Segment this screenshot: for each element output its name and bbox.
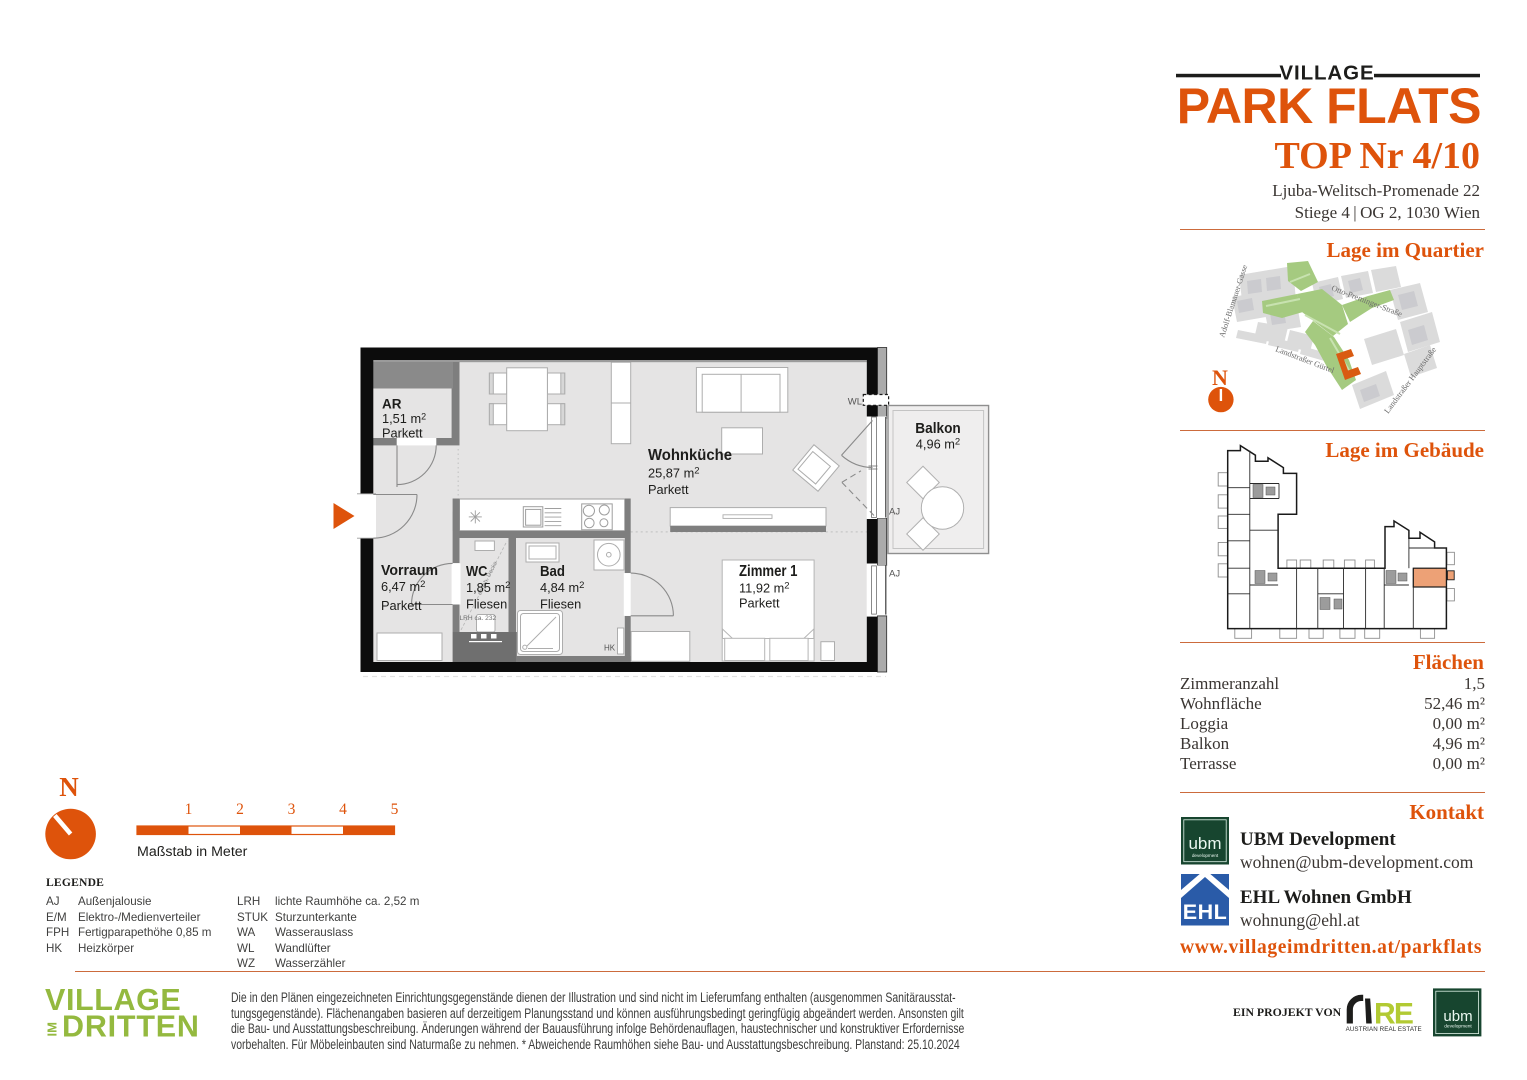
svg-text:2: 2 — [236, 801, 244, 818]
svg-text:Vorraum: Vorraum — [381, 562, 438, 579]
svg-text:HK: HK — [604, 644, 616, 653]
svg-text:DRITTEN: DRITTEN — [62, 1010, 200, 1044]
svg-text:EHL: EHL — [1183, 900, 1228, 924]
svg-text:N: N — [1212, 365, 1228, 390]
svg-text:Parkett: Parkett — [648, 482, 689, 497]
svg-text:Bad: Bad — [540, 563, 565, 580]
svg-text:N: N — [59, 772, 79, 802]
svg-text:Maßstab in Meter: Maßstab in Meter — [137, 844, 248, 860]
svg-text:Fliesen: Fliesen — [466, 597, 507, 612]
svg-text:25,87 m2: 25,87 m2 — [648, 466, 700, 481]
svg-text:11,92 m2: 11,92 m2 — [739, 581, 790, 596]
svg-text:Zimmer 1: Zimmer 1 — [739, 563, 798, 580]
svg-text:Parkett: Parkett — [739, 596, 780, 611]
svg-text:1: 1 — [185, 801, 193, 818]
svg-text:Parkett: Parkett — [381, 598, 422, 613]
svg-text:4,84 m2: 4,84 m2 — [540, 580, 584, 595]
svg-text:6,47 m2: 6,47 m2 — [381, 579, 425, 594]
svg-text:AR: AR — [382, 397, 402, 412]
svg-text:3: 3 — [288, 801, 296, 818]
svg-text:Parkett: Parkett — [382, 426, 423, 441]
svg-text:LRH ca. 232: LRH ca. 232 — [460, 615, 497, 622]
svg-text:AJ: AJ — [889, 507, 900, 518]
svg-text:development: development — [1444, 1024, 1472, 1030]
svg-text:Wohnküche: Wohnküche — [648, 447, 732, 464]
svg-text:5: 5 — [391, 801, 399, 818]
svg-text:4: 4 — [339, 801, 347, 818]
svg-text:1,51 m2: 1,51 m2 — [382, 411, 426, 426]
svg-text:WC: WC — [466, 563, 488, 580]
svg-text:ubm: ubm — [1188, 834, 1221, 853]
svg-text:4,96 m2: 4,96 m2 — [916, 437, 960, 452]
svg-text:1,85 m2: 1,85 m2 — [466, 580, 510, 595]
svg-text:IM: IM — [45, 1022, 60, 1036]
svg-text:development: development — [1192, 853, 1219, 858]
svg-text:Fliesen: Fliesen — [540, 597, 581, 612]
svg-text:WL: WL — [848, 397, 862, 408]
svg-text:AUSTRIAN REAL ESTATE: AUSTRIAN REAL ESTATE — [1346, 1026, 1422, 1033]
svg-text:PARK FLATS: PARK FLATS — [1177, 78, 1481, 134]
svg-text:Balkon: Balkon — [915, 420, 961, 437]
svg-text:AJ: AJ — [889, 569, 900, 580]
svg-text:ubm: ubm — [1443, 1008, 1472, 1025]
